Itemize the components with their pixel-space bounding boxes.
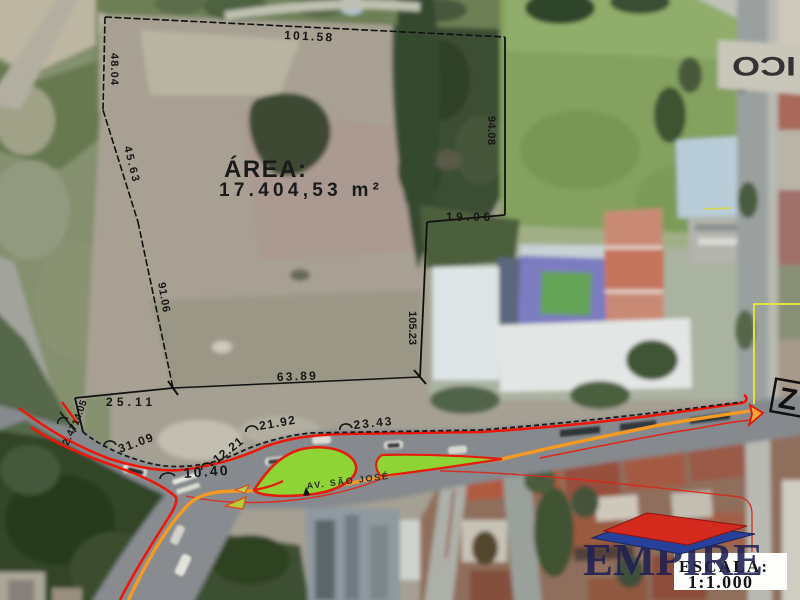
svg-text:ICO: ICO bbox=[732, 51, 796, 81]
svg-text:48.04: 48.04 bbox=[108, 53, 120, 86]
svg-text:94.08: 94.08 bbox=[485, 116, 497, 145]
svg-text:10.40: 10.40 bbox=[183, 462, 228, 481]
svg-text:ÁREA:: ÁREA: bbox=[224, 155, 306, 183]
svg-text:105.23: 105.23 bbox=[406, 311, 418, 345]
svg-text:19.06: 19.06 bbox=[446, 210, 490, 224]
svg-text:63.89: 63.89 bbox=[277, 369, 317, 384]
